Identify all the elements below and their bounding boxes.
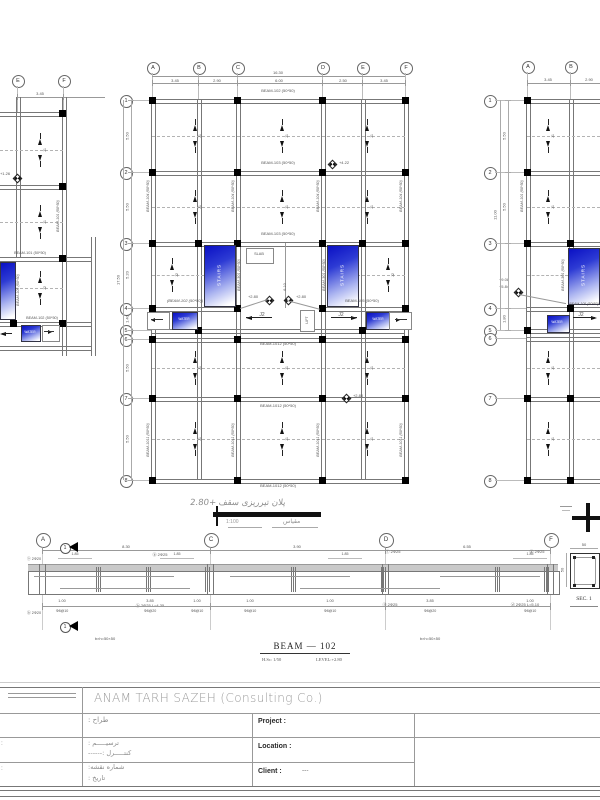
column-square [59,255,66,262]
size-note: b×h=50×50 [95,636,115,641]
frame-line [0,790,600,791]
stirrup-group [205,567,206,592]
rebar-dot [573,556,576,559]
beam-label: BEAM-104 (50*50) [231,180,235,212]
column-square [149,305,156,312]
cut-mark-flag [69,621,78,631]
dim-label: 1.00 [58,599,65,603]
beam-line [0,346,92,351]
line [282,450,283,456]
dim-tick [505,308,511,309]
dim-line [328,558,362,559]
size-note: b×h=50×50 [420,636,440,641]
joist-label: J1 [198,366,202,370]
dim-label: 3.45 [380,78,388,83]
beam-line [152,397,405,402]
joist-label: J1 [551,205,555,209]
dim-label: 3.45 [36,91,44,96]
dim-label: 3.90 [293,544,301,549]
joist-arrow [365,125,369,131]
beam-label: BEAM-1012 (50*50) [260,483,296,488]
water-box [172,312,198,330]
rebar-note: Φ8@10 [191,609,204,613]
beam-label: BEAM-1012 (50*50) [260,341,296,346]
joist-arrow [546,428,550,434]
joist-arrow [280,357,284,363]
titleblock-border [414,713,415,786]
dim-label: 2.90 [585,77,593,82]
beam-body [28,571,560,595]
logo-line [8,693,76,694]
dim-tick [128,100,134,101]
level-label: +2.80 [296,294,306,299]
frame-line [0,796,600,797]
beam-label: BEAM-1012 (50*50) [260,403,296,408]
grid-bubble: D [379,533,394,548]
joist-label: J1 [43,220,47,224]
dashed-centerline [152,207,405,208]
column-square [524,97,531,104]
column-square [149,336,156,343]
column-square [319,477,326,484]
joist-label: J1 [198,437,202,441]
column-square [402,395,409,402]
column-square [319,97,326,104]
location-label: Location : [258,743,291,750]
beam-line [0,185,63,190]
client-value: --- [302,768,309,775]
callout-label: ⓐ 2Φ20 [27,557,41,562]
joist-label: J1 [43,148,47,152]
grid-bubble: C [204,533,219,548]
titleblock-border [0,687,600,688]
dim-label: 1.85 [342,552,349,556]
beam-label: BEAM-1011 (50*50) [231,423,235,457]
level-symbol [327,159,337,169]
dim-tick [505,243,511,244]
dim-tick [527,80,528,86]
joist-label: J1 [198,205,202,209]
beam-label: BEAM-103 (50*50) [261,160,295,165]
callout-label: ⓒ 2Φ25 [386,549,401,555]
dim-label: 1.85 [72,552,79,556]
lift-label: LIFT [305,316,309,323]
guide-line [495,398,527,399]
joist-label: J1 [285,205,289,209]
dim-tick [128,308,134,309]
line [246,317,272,318]
dim-label: 1.80 [502,315,507,323]
plan-caption-title: پلان تيرريزى سقف +2.80 [189,499,286,508]
column-square [359,240,366,247]
grid-bubble: F [400,62,413,75]
line [40,299,41,305]
line [2,333,12,334]
column-square [10,320,17,327]
dim-tick [505,100,511,101]
caption-bar [586,503,590,532]
dim-label: 1.00 [326,599,333,603]
dim-tick [128,339,134,340]
water-label: WATER [24,330,35,334]
guide-line [495,338,527,339]
beam-elevation-title: BEAM — 102 [260,642,350,654]
logo-line [8,697,76,698]
titleblock-border [0,786,600,787]
joist-arrow [193,357,197,363]
beam-line [527,397,600,402]
dim-label: 3.85 [426,599,433,603]
dim-tick [128,398,134,399]
line [388,564,389,594]
line [548,147,549,153]
dim-tick [505,172,511,173]
project-label: Project : [258,718,286,725]
dim-label: 6.10 [283,283,287,290]
column-square [319,169,326,176]
date-label: تاريخ : [88,775,246,782]
column-square [402,477,409,484]
line [45,564,46,594]
client-label: Client : [258,768,282,775]
column-square [149,240,156,247]
joist-arrow [193,428,197,434]
dim-tick [210,547,211,554]
caption-bar [213,512,321,517]
grid-bubble: B [193,62,206,75]
rebar-note: Φ8@10 [244,609,257,613]
grid-bubble: F [544,533,559,548]
dim-line [42,550,550,551]
beam-label: BEAM-1011 (50*50) [146,423,150,457]
grid-bubble: A [36,533,51,548]
joist-arrow [193,125,197,131]
stirrup-group [497,567,498,592]
beam-label: BEAM-103 (50*50) [261,231,295,236]
line [573,317,595,318]
beam-line [527,337,600,342]
grid-bubble: E [357,62,370,75]
beam-label: BEAM-105 (50*50) [345,298,379,303]
column-square [149,477,156,484]
grid-bubble: 3 [484,238,497,251]
beam-line [527,307,600,312]
beam-line [197,100,202,480]
rebar-line [440,576,540,577]
water-label: WATER [372,317,383,321]
column-square [234,97,241,104]
beam-line [527,99,600,104]
joist-arrow [280,428,284,434]
grid-bubble: D [317,62,330,75]
beam-line [0,112,63,117]
beam-line [91,237,96,356]
dim-tick [405,80,406,86]
frame-line [0,682,600,683]
column-square [402,97,409,104]
titleblock-border [252,713,253,786]
column-square [195,240,202,247]
dim-label: 1.00 [246,599,253,603]
line [560,506,572,507]
joist-label: J2 [43,286,47,290]
joist-arrow [280,125,284,131]
line [562,510,570,511]
joist-label: J1 [551,366,555,370]
line [548,450,549,456]
dim-label: 1.85 [174,552,181,556]
dim-label: 3.85 [146,599,153,603]
stirrup-group [295,567,296,592]
company-name: ANAM TARH SAZEH (Consulting Co.) [94,692,323,704]
line [195,379,196,385]
dim-line [58,558,92,559]
joist-arrow [38,139,42,145]
line [367,450,368,456]
column-square [402,336,409,343]
grid-bubble: 2 [484,167,497,180]
beam-label: BEAM-102 (50*50) [261,88,295,93]
dim-line [508,100,509,330]
dim-line [131,100,132,480]
line [388,286,389,292]
joist-label: J1 [551,437,555,441]
designer-label: طراح : [88,717,246,724]
dim-tick [505,330,511,331]
column-square [524,240,531,247]
column-square [319,336,326,343]
dashed-centerline [0,150,63,151]
titleblock-border [82,687,83,786]
line [548,218,549,224]
dim-line [123,100,124,480]
joist-label: J1 [370,437,374,441]
callout-label: ⓑ 2Φ25 [153,552,168,558]
stairs-label: STAIRS [340,264,345,286]
titleblock-border [0,762,414,763]
beam-line [62,97,67,356]
joist-label: J1 [285,437,289,441]
beam-label: BEAM-105 (50*50) [569,302,598,306]
dashed-centerline [527,136,600,137]
beam-label: BEAM-104 (50*50) [399,180,403,212]
grid-bubble: C [232,62,245,75]
grid-bubble: F [58,75,71,88]
dim-label: 6.00 [275,78,283,83]
dim-tick [362,80,363,86]
dim-line [566,553,567,587]
line [172,286,173,292]
dim-tick [322,80,323,86]
dim-label: 2.90 [213,78,221,83]
beam-line [527,242,600,247]
joist-arrow [546,357,550,363]
section-caption: SEC. 1 [576,597,592,603]
dim-label: 6.55 [463,544,471,549]
column-square [59,183,66,190]
column-square [402,169,409,176]
beam-label: BEAM-301 (50*50) [322,259,326,291]
beam-label: BEAM-102 (50*50) [26,316,58,320]
dim-label: 50 [582,542,586,547]
column-square [402,305,409,312]
callout-label: ⓓ 2Φ25 L=5.10 [511,602,539,608]
stairs-box [0,262,16,320]
joist-label: J1 [370,366,374,370]
joist-label: J2 [391,273,395,277]
beam-line [152,99,405,104]
level-label: +2.80 [353,393,363,398]
rebar-line [34,576,174,577]
dim-label: 5.50 [502,132,507,140]
line [548,379,549,385]
beam-label: BEAM-104 (50*50) [316,180,320,212]
dim-line [152,83,405,84]
dashed-centerline [152,368,405,369]
beam-line [0,257,92,262]
dashed-centerline [152,439,405,440]
caption-underline [570,606,598,607]
joist-label: J2 [175,273,179,277]
control-label: كنتـــــرل :------ [88,750,246,757]
column-square [149,395,156,402]
line [367,218,368,224]
dim-label: 3.45 [171,78,179,83]
dim-label: 1.00 [526,599,533,603]
dim-label: 3.45 [544,77,552,82]
column-square [359,327,366,334]
rebar-note: Φ8@10 [324,609,337,613]
dim-tick [385,603,386,610]
beam-line [361,100,366,480]
column-square [234,336,241,343]
stirrup-group [548,567,549,592]
dim-label: 8.30 [122,544,130,549]
level-label: +4.22 [339,160,349,165]
line [195,450,196,456]
beam-line [404,100,409,480]
rebar-note: Φ8@20 [424,609,437,613]
stirrup-group [291,567,292,592]
stirrup-group [495,567,496,592]
titleblock-border [0,737,600,738]
line [213,564,214,594]
column-square [524,169,531,176]
joist-arrow [193,196,197,202]
caption-underline [228,527,262,528]
dim-label: 5.50 [125,364,130,372]
joist-label: J1 [285,366,289,370]
joist-arrow [546,125,550,131]
grid-bubble: A [522,61,535,74]
column-square [59,110,66,117]
caption-underline [272,527,318,528]
grid-bubble: 4 [484,303,497,316]
beam-label: BEAM-101 (50*50) [520,180,524,212]
beam-label: BEAM-301 (50*50) [237,259,241,291]
dim-tick [210,603,211,610]
dim-label: 5.50 [502,203,507,211]
beam-line [152,307,237,312]
grid-bubble: A [147,62,160,75]
grid-bubble: 7 [484,393,497,406]
column-square [234,169,241,176]
beam-label: BEAM-1011 (50*50) [316,423,320,457]
stirrup-group [207,567,208,592]
line [195,218,196,224]
column-square [567,395,574,402]
beam-label: BEAM-1011 (50*50) [399,423,403,457]
level-label: +2.80 [248,294,258,299]
stirrup-group [293,567,294,592]
column-square [524,395,531,402]
rebar-note: Φ8@20 [144,609,157,613]
joist-arrow [386,264,390,270]
dim-label: 50 [560,568,565,572]
grid-bubble: 8 [484,475,497,488]
callout-label: ⓑ 2Φ20 [27,611,41,616]
beam-line [526,100,531,480]
titleblock-left-mark-1: : [1,741,3,748]
guide-line [405,73,406,100]
rebar-dot [592,584,595,587]
dim-label: 1.40 [125,315,130,323]
beam-line [527,479,600,484]
beam-label: BEAM-101 (50*50) [14,251,46,255]
rebar-dot [573,584,576,587]
dim-line [570,548,598,549]
water-label: WATER [551,320,562,324]
stirrup-group [544,567,545,592]
column-square [149,169,156,176]
dim-tick [128,243,134,244]
beam-line [152,171,405,176]
joist-arrow [365,196,369,202]
joist-label: J1 [198,134,202,138]
beam-line [152,242,405,247]
dim-tick [42,603,43,610]
joist-arrow [170,264,174,270]
dashed-centerline [0,222,63,223]
stirrup-group [209,567,210,592]
beam-line [151,100,156,480]
line [44,331,54,332]
line [39,564,40,594]
beam-scale-note: H.Sc: 1/50 [262,658,281,663]
rebar-line [300,588,440,589]
rebar-line [230,576,350,577]
column-square [319,240,326,247]
joist-label: J1 [551,134,555,138]
dim-label: 2.50 [339,78,347,83]
sheet-no-label: شماره نقشه: [88,764,246,771]
dim-tick [550,603,551,610]
dim-label: 11.00 [493,210,498,220]
line [151,319,163,320]
line [367,147,368,153]
line [195,147,196,153]
dim-line [527,83,600,84]
dashed-centerline [152,136,405,137]
line [40,233,41,239]
section-stirrup [574,557,596,585]
beam-label: BEAM-105 (50*50) [16,274,20,306]
joist-label: J1 [285,134,289,138]
titleblock-left-mark-2: : [1,766,3,773]
grid-bubble: E [12,75,25,88]
guide-line [495,480,527,481]
titleblock-border [0,713,600,714]
